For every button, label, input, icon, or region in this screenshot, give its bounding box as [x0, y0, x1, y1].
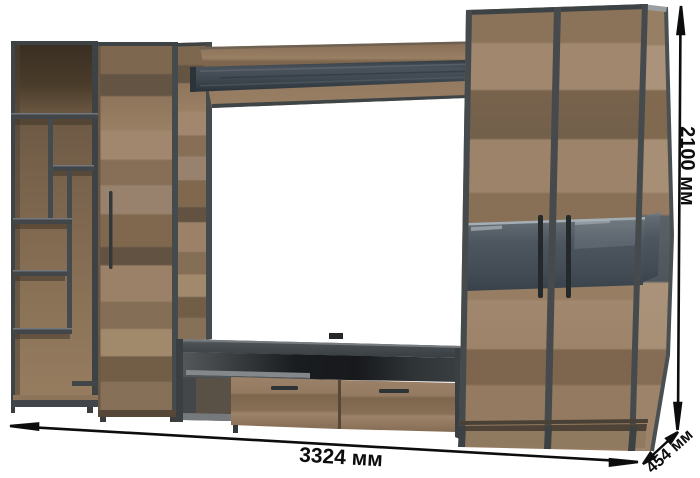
svg-text:3324 мм: 3324 мм — [299, 444, 384, 472]
svg-text:2100 мм: 2100 мм — [676, 126, 698, 206]
